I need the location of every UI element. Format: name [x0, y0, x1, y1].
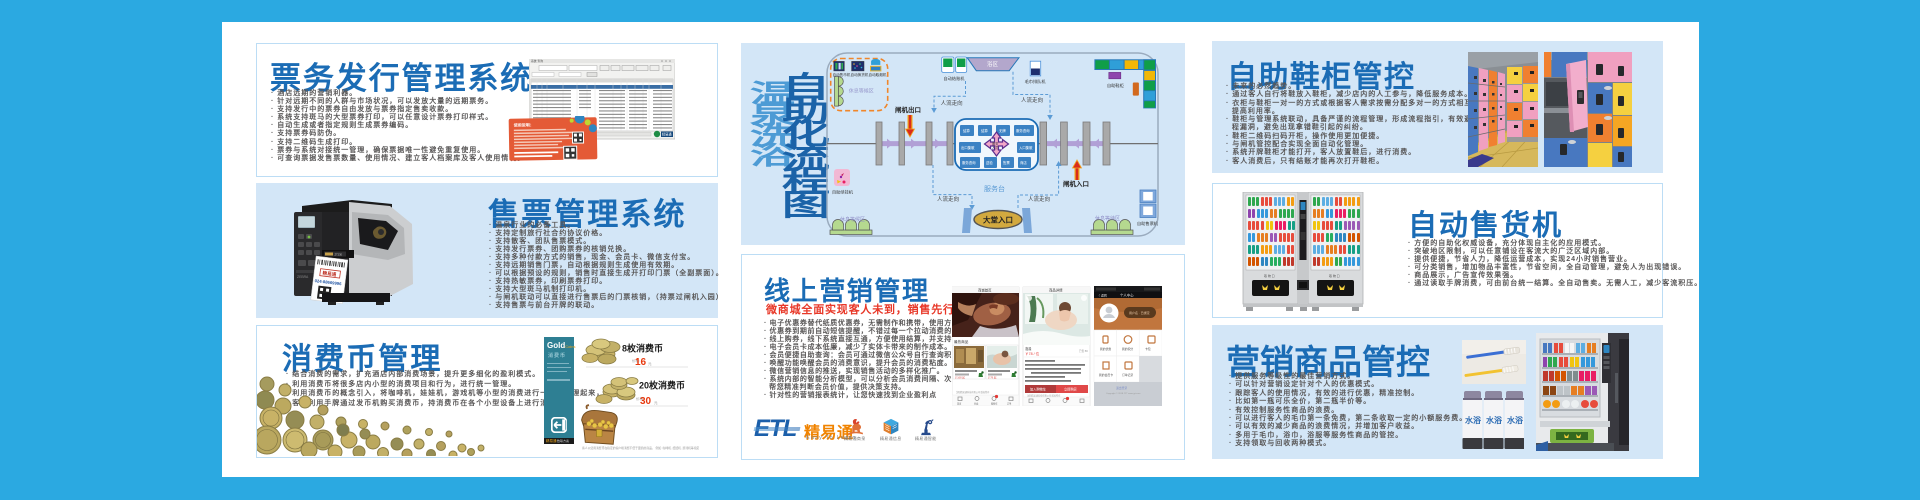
svg-text:入口集散: 入口集散 — [1019, 145, 1033, 150]
svg-text:ZEBRA: ZEBRA — [297, 275, 309, 279]
svg-text:20枚消费币: 20枚消费币 — [639, 380, 685, 391]
svg-text:已售:86: 已售:86 — [1079, 349, 1088, 353]
svg-text:人流走向: 人流走向 — [941, 99, 963, 107]
svg-text:元: 元 — [648, 362, 652, 366]
svg-text:商城首页: 商城首页 — [978, 288, 992, 293]
svg-text:〈 返回: 〈 返回 — [1097, 293, 1107, 298]
svg-text:闸机入口: 闸机入口 — [1063, 179, 1089, 188]
svg-text:休息等候区: 休息等候区 — [840, 216, 865, 223]
svg-text:我的会员卡: 我的会员卡 — [1099, 373, 1113, 377]
svg-text:休息等待区: 休息等待区 — [1095, 215, 1120, 222]
svg-text:售票: 售票 — [1003, 160, 1010, 165]
svg-text:￥168 起: ￥168 起 — [955, 376, 966, 380]
svg-text:退出登录: 退出登录 — [1116, 386, 1127, 390]
svg-text:自动取烟机: 自动取烟机 — [869, 72, 887, 77]
svg-text:8枚消费币: 8枚消费币 — [622, 343, 663, 354]
svg-text:出口集散: 出口集散 — [961, 145, 975, 150]
svg-text:￥78 / 位: ￥78 / 位 — [1025, 351, 1040, 356]
svg-text:大堂入口: 大堂入口 — [983, 215, 1013, 225]
svg-text:服务咨询: 服务咨询 — [962, 160, 976, 165]
svg-text:加入购物车: 加入购物车 — [1030, 387, 1046, 392]
svg-text:泡澡: 泡澡 — [1025, 346, 1032, 351]
svg-text:我的优惠: 我的优惠 — [1100, 347, 1111, 351]
svg-text:自助售票机: 自助售票机 — [1137, 220, 1159, 227]
svg-text:系统 查询: 系统 查询 — [531, 59, 543, 63]
svg-text:Copyright © 2018 JYT www.jyt.c: Copyright © 2018 JYT www.jyt.com — [1106, 392, 1140, 395]
svg-text:商品详情: 商品详情 — [1049, 288, 1063, 293]
svg-text:人流走向: 人流走向 — [937, 195, 959, 203]
svg-text:ZT230: ZT230 — [335, 253, 343, 257]
svg-text:使用说明：: 使用说明： — [513, 121, 534, 127]
svg-text:订单记录: 订单记录 — [1122, 373, 1133, 377]
svg-text:休息等候区: 休息等候区 — [849, 88, 874, 95]
svg-text:商店: 商店 — [1020, 160, 1027, 165]
svg-text:人员: 人员 — [992, 146, 998, 150]
svg-text:个人中心: 个人中心 — [1120, 293, 1134, 298]
svg-text:闸机出口: 闸机出口 — [895, 105, 921, 114]
svg-text:客人以使用消费币在指定的客户端消费不低于面值的商品。 例如:: 客人以使用消费币在指定的客户端消费不低于面值的商品。 例如: 咖啡机, 娃娃机,… — [582, 446, 699, 450]
svg-text:水浴: 水浴 — [1464, 415, 1482, 425]
svg-text:16: 16 — [635, 357, 647, 368]
svg-text:用户名 · 已绑定: 用户名 · 已绑定 — [1129, 310, 1150, 315]
svg-text:取 物 口: 取 物 口 — [1329, 273, 1340, 278]
svg-text:元: 元 — [654, 401, 658, 405]
svg-text:人流走向: 人流走向 — [1028, 195, 1050, 203]
svg-text:结算: 结算 — [981, 128, 988, 133]
svg-text:自动售币机: 自动售币机 — [833, 72, 851, 77]
svg-text:自动结账机: 自动结账机 — [944, 75, 966, 82]
svg-text:浴区: 浴区 — [987, 60, 999, 68]
svg-text:结算: 结算 — [963, 128, 970, 133]
svg-text:无牌: 无牌 — [999, 128, 1006, 133]
svg-text:人流走向: 人流走向 — [1021, 96, 1043, 104]
svg-text:我的积分: 我的积分 — [1122, 347, 1133, 351]
svg-text:取 物 口: 取 物 口 — [1264, 273, 1275, 278]
svg-text:服务台: 服务台 — [984, 184, 1005, 193]
svg-text:自动换货机: 自动换货机 — [851, 72, 869, 77]
svg-text:卡包: 卡包 — [1145, 347, 1151, 351]
svg-text:精易通: 精易通 — [662, 132, 672, 137]
svg-text:送检: 送检 — [986, 160, 993, 165]
svg-text:30: 30 — [640, 396, 652, 407]
svg-text:立即购买: 立即购买 — [1064, 387, 1077, 392]
svg-text:服务咨询: 服务咨询 — [1016, 128, 1030, 133]
svg-text:自助鞋柜: 自助鞋柜 — [1107, 82, 1124, 89]
svg-text:自助续挂机: 自助续挂机 — [832, 189, 854, 196]
svg-text:最热商品: 最热商品 — [954, 339, 969, 344]
svg-text:￥78 起: ￥78 起 — [988, 376, 997, 380]
svg-text:毛巾排队机: 毛巾排队机 — [1025, 78, 1047, 85]
